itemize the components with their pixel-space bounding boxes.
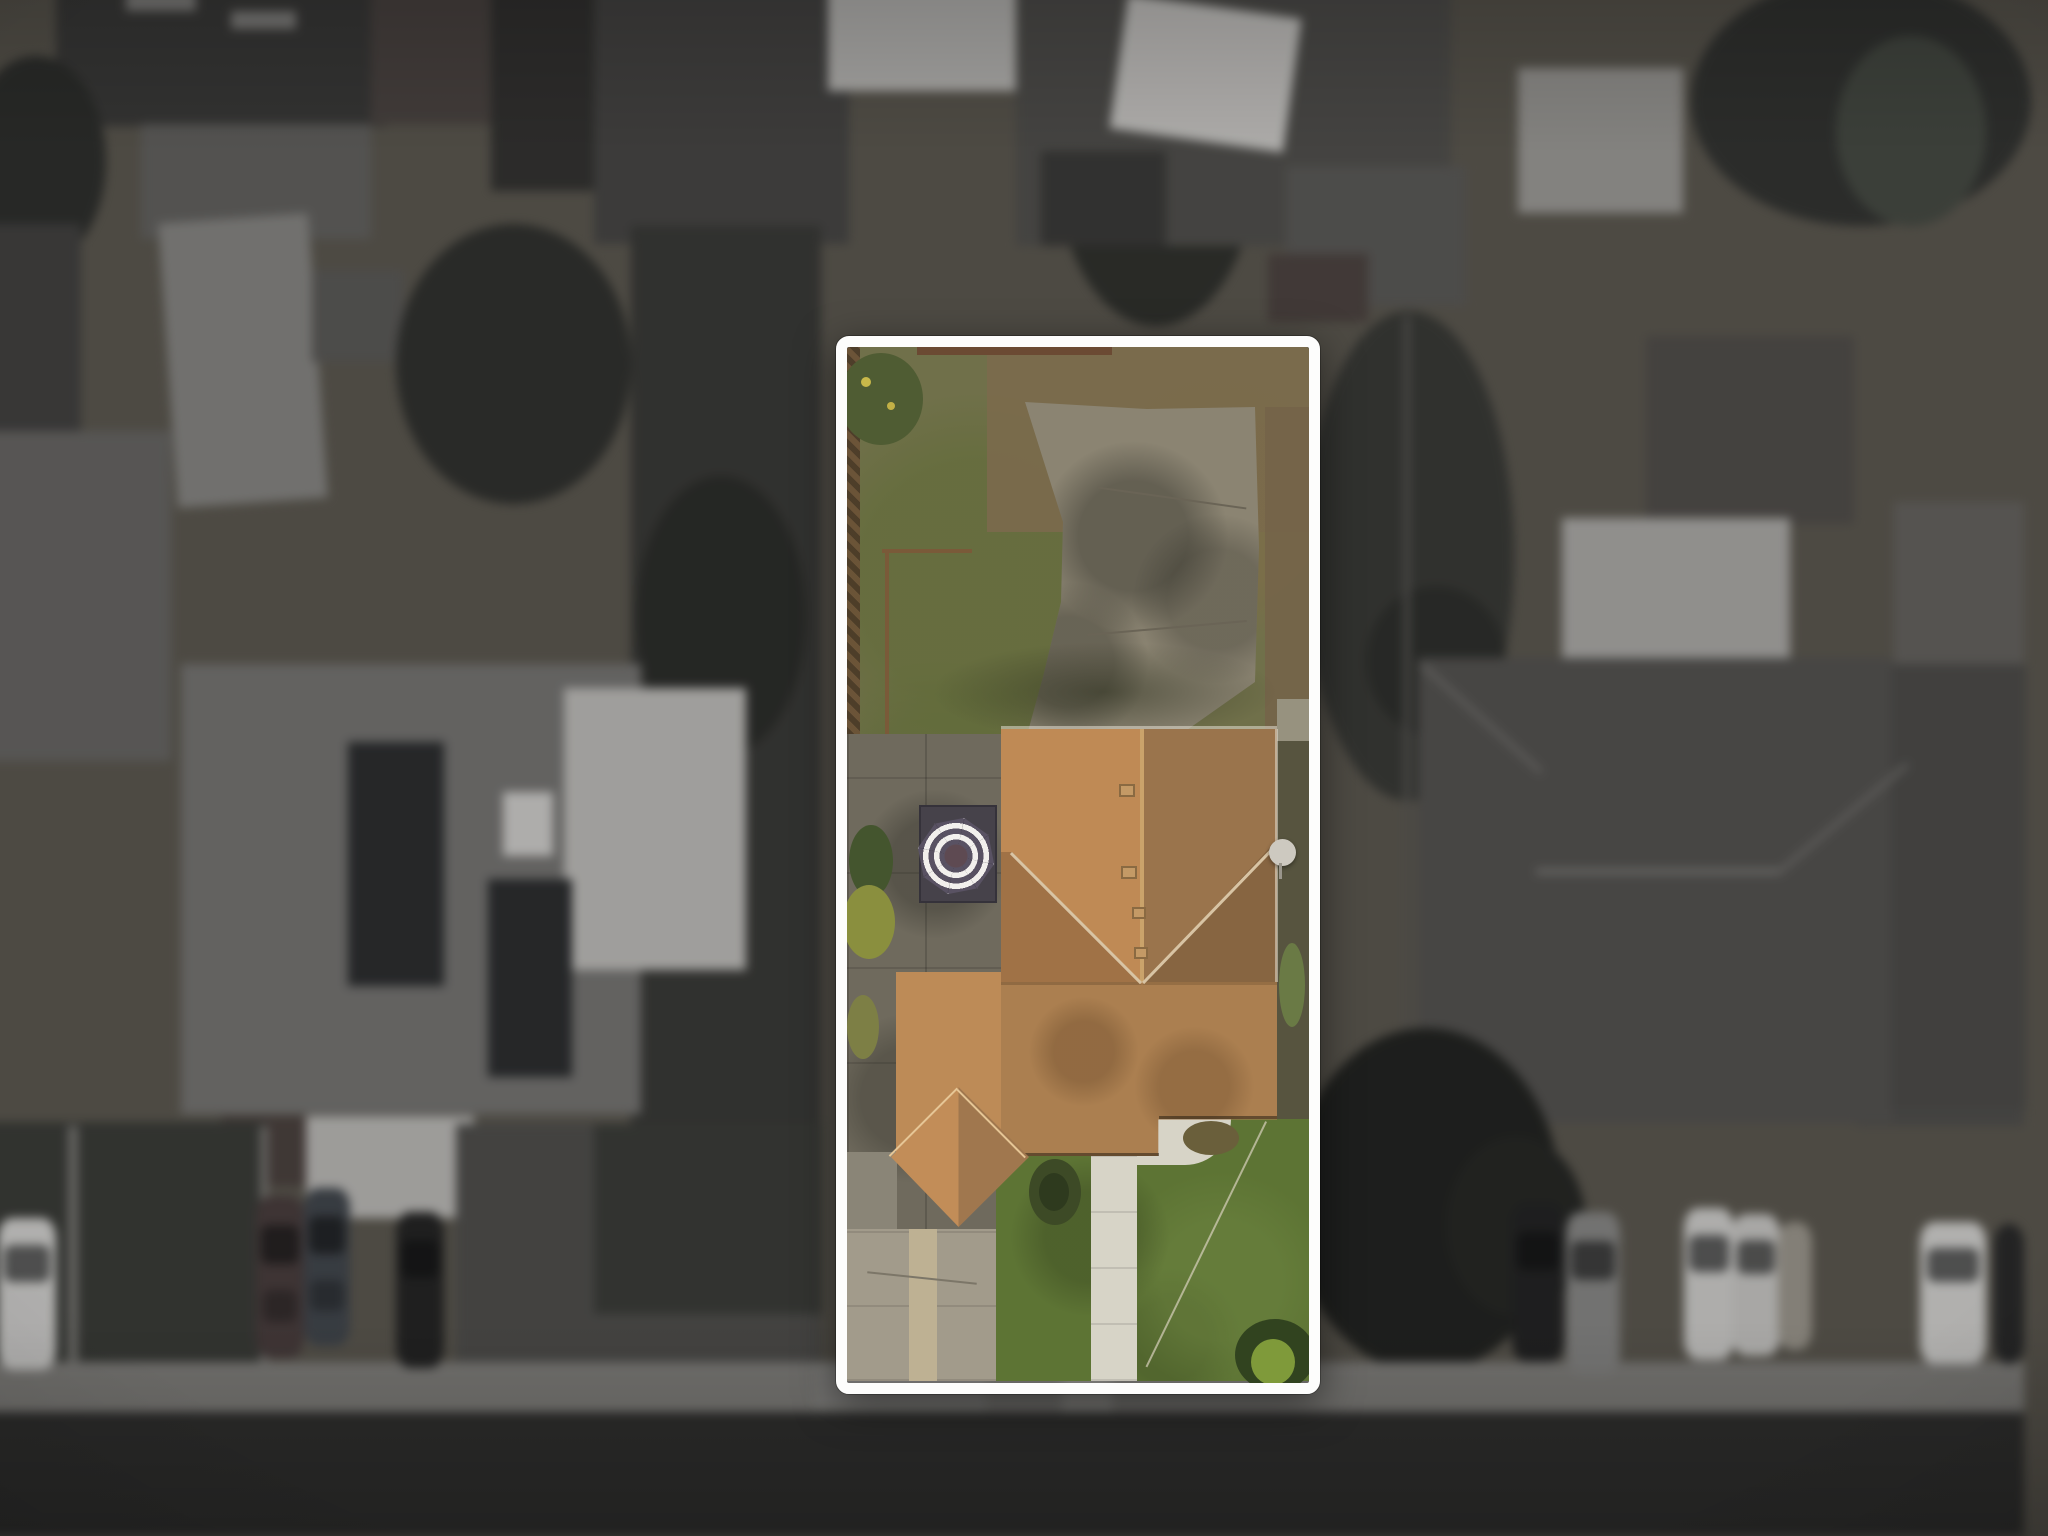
bg-fence-post	[68, 1126, 78, 1366]
property-lot	[847, 347, 1309, 1383]
bg-palm-tree	[1836, 36, 1986, 226]
bg-roof-units	[1041, 151, 1166, 246]
bg-white-flat-roof	[564, 688, 746, 970]
bg-brick-house	[371, 0, 511, 124]
bg-roof	[56, 0, 386, 126]
roof-ridge	[1140, 729, 1144, 982]
property-lot-outline	[836, 336, 1320, 1394]
bg-shed	[312, 270, 404, 362]
windshield	[401, 1240, 439, 1277]
solar-panel-array	[348, 742, 444, 986]
parked-car-dark	[1994, 1224, 2024, 1364]
windshield	[1517, 1232, 1559, 1270]
roof-vent	[1119, 784, 1135, 797]
door-bush-shade	[1039, 1173, 1069, 1211]
bg-skylight	[126, 0, 196, 11]
patio-lower	[847, 1152, 897, 1232]
satellite-dish	[1269, 839, 1296, 866]
roof-vent	[1134, 947, 1148, 959]
driveway-accent-strip	[909, 1229, 937, 1381]
bg-house	[594, 0, 849, 244]
bush-blooms	[887, 402, 895, 410]
garden-edging	[882, 549, 972, 553]
corner-bush-bright	[1251, 1339, 1295, 1383]
bg-canopy	[1109, 0, 1301, 153]
bg-trees	[396, 224, 631, 504]
bg-trellis	[1518, 68, 1683, 213]
solar-panel-array	[488, 879, 572, 1077]
windshield	[1927, 1248, 1980, 1282]
lower-roof-eave	[1159, 1116, 1277, 1119]
roof-gutter	[1001, 726, 1277, 729]
garden-edging	[885, 549, 889, 739]
roof-vent	[1121, 866, 1137, 879]
parked-car-white	[1920, 1222, 1986, 1364]
bush-blooms	[861, 377, 871, 387]
parked-car-black	[396, 1212, 444, 1368]
bg-red-shed	[1268, 254, 1368, 322]
parked-car-black	[1512, 1204, 1564, 1362]
side-bush	[847, 995, 879, 1059]
roof-vent	[1132, 907, 1146, 919]
windshield	[1571, 1241, 1614, 1280]
parked-car-white	[1732, 1214, 1780, 1356]
bg-brown-shed	[1646, 336, 1854, 524]
windshield	[4, 1245, 50, 1281]
bg-fence	[1404, 316, 1410, 1056]
bg-roof	[1891, 664, 2026, 1109]
bg-skylight	[503, 792, 553, 856]
aerial-photo	[0, 0, 2048, 1536]
parked-car-gray	[1566, 1212, 1620, 1374]
side-yard-strip	[1275, 729, 1309, 1121]
street-asphalt	[0, 1412, 2024, 1536]
rear-window	[263, 1290, 298, 1322]
lawn-shrub-brown	[1183, 1121, 1239, 1155]
windshield	[1737, 1240, 1775, 1274]
bg-skylight	[231, 11, 296, 29]
side-yard-moss	[1279, 943, 1305, 1027]
backyard-fence-top	[917, 347, 1112, 355]
parked-car-tan	[1778, 1222, 1812, 1350]
parked-car-blue	[304, 1188, 350, 1346]
bg-roof-ridge	[1536, 869, 1781, 874]
windshield	[309, 1216, 346, 1254]
side-yard-path	[1277, 699, 1309, 741]
bg-warehouse-roof	[158, 213, 328, 508]
satellite-dish-arm	[1279, 863, 1282, 879]
front-walkway	[1091, 1119, 1137, 1381]
windshield	[261, 1225, 299, 1264]
parked-car-white	[1684, 1208, 1734, 1360]
bg-hedge	[594, 1124, 822, 1314]
rear-window	[310, 1280, 343, 1312]
bg-roof	[0, 224, 81, 439]
bg-paver-patio	[0, 431, 171, 761]
windshield	[1689, 1235, 1729, 1271]
parked-car-white	[0, 1218, 56, 1370]
parked-car-maroon	[256, 1196, 304, 1358]
